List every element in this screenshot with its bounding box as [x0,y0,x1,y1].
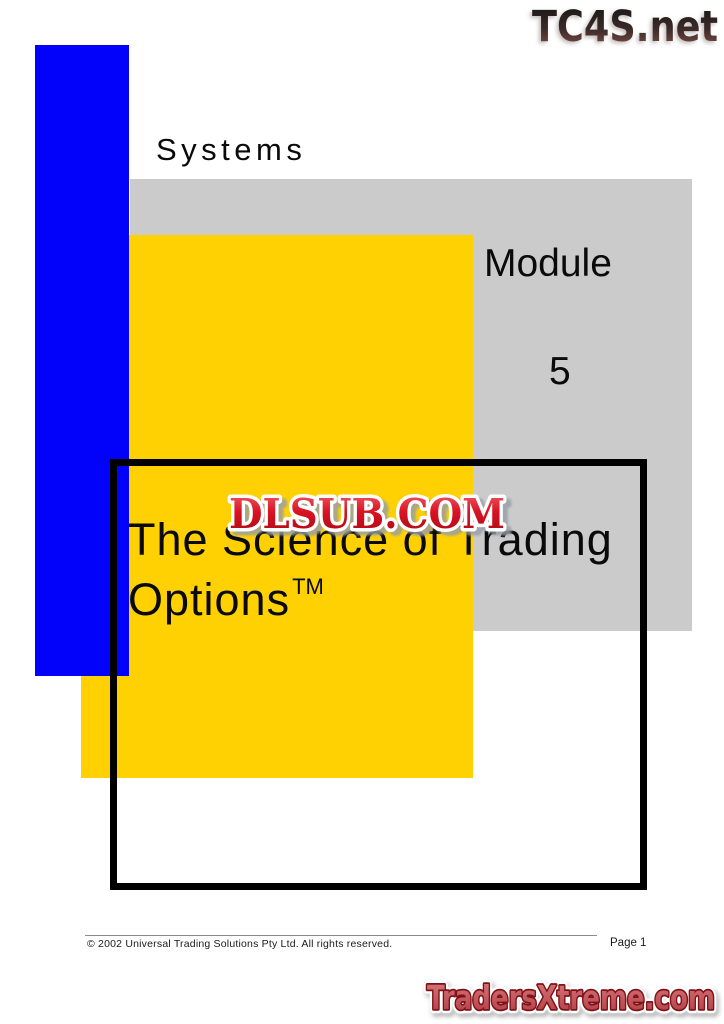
series-label: Systems [156,132,306,168]
title-line-2-text: Options [128,574,290,625]
dlsub-watermark-text: DLSUB.COM [229,490,505,538]
pdf-cover-page: Systems Module 5 The Science of Trading … [0,0,724,1024]
copyright-notice: © 2002 Universal Trading Solutions Pty L… [87,937,392,951]
tradersxtreme-logo-text: TradersXtreme.com [427,978,715,1017]
dlsub-watermark: DLSUB.COM [212,478,532,542]
title-line-2: OptionsTM [128,570,613,638]
module-number: 5 [549,350,571,394]
tradersxtreme-logo: TradersXtreme.com TradersXtreme.com [416,976,724,1024]
tc4s-logo: TC4S.net [523,0,724,54]
tc4s-logo-text: TC4S.net [532,2,718,52]
module-label: Module [484,242,612,286]
footer-divider-line [85,935,597,936]
page-number: Page 1 [610,936,646,951]
trademark-symbol: TM [292,574,324,599]
